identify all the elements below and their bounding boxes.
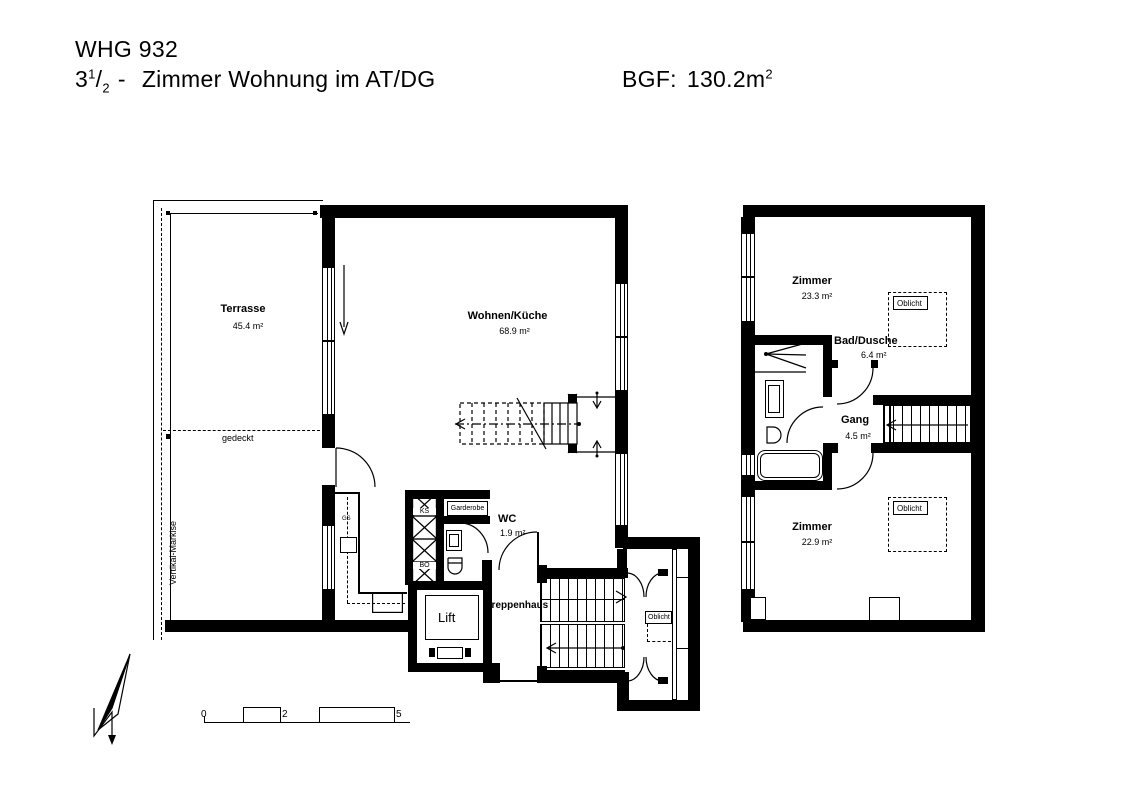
bathtub-inner [760, 453, 820, 478]
wohnen-area: 68.9 m² [462, 326, 567, 336]
scale-tick [204, 716, 205, 723]
terrasse-area: 45.4 m² [198, 321, 298, 331]
annex-glazing [672, 549, 677, 700]
gang-label: Gang [830, 414, 880, 426]
wc-door-swing [460, 523, 490, 555]
wohnen-label: Wohnen/Küche [455, 310, 560, 322]
wc-label: WC [498, 513, 516, 525]
window-transom [322, 340, 335, 342]
zimmer-top-area: 23.3 m² [767, 291, 867, 301]
oblicht-top-label: Oblicht [897, 299, 922, 308]
internal-stair [455, 390, 620, 460]
oblicht-bottom-label: Oblicht [897, 504, 922, 513]
window [615, 453, 628, 526]
wall [405, 490, 412, 585]
chimney-block [869, 597, 900, 621]
terrace-slab-top [168, 213, 318, 214]
zimmer-top-door-swing [835, 366, 875, 406]
room-count: 3 [75, 66, 88, 92]
wall [482, 560, 492, 583]
bgf-sup: 2 [765, 66, 773, 81]
wall [743, 481, 832, 490]
door-frame-block [658, 677, 668, 684]
terrace-outline-left [153, 200, 154, 640]
bath-toilet [764, 425, 786, 445]
wall [540, 670, 625, 683]
gedeckt-line [163, 430, 320, 431]
window [741, 496, 755, 590]
lift-door-block [465, 648, 471, 657]
scale-segment [204, 722, 243, 723]
wall [437, 490, 444, 585]
subtitle-text: Zimmer Wohnung im AT/DG [142, 66, 436, 92]
plan-title: WHG 932 [75, 36, 178, 63]
zimmer-bottom-label: Zimmer [762, 521, 862, 533]
plan-subtitle: 31/2-Zimmer Wohnung im AT/DG [75, 66, 435, 96]
zimmer-bottom-area: 22.9 m² [767, 537, 867, 547]
oblicht-dash [647, 624, 648, 642]
fridge-label: KS [413, 508, 436, 515]
wall [322, 415, 335, 448]
fraction-numerator: 1 [88, 66, 96, 81]
bad-area: 6.4 m² [861, 350, 887, 360]
wall [823, 443, 832, 483]
wall [540, 568, 628, 578]
subtitle-dash: - [118, 66, 126, 92]
window-transom [741, 276, 755, 278]
terrace-outline-top [153, 200, 323, 201]
wall [743, 620, 985, 632]
gedeckt-label: gedeckt [222, 433, 254, 443]
entry-door-swing [499, 532, 539, 572]
gang-area: 4.5 m² [833, 431, 883, 441]
bad-door-swing [785, 405, 825, 445]
scale-tick-5: 5 [396, 709, 402, 720]
stair-direction-arrow [884, 417, 972, 433]
window-transom [615, 336, 628, 338]
wall [878, 443, 971, 453]
wc-sink-basin [449, 534, 459, 547]
dishwasher-label: GS [342, 516, 351, 522]
scale-segment-box [319, 707, 395, 723]
dishwasher [340, 537, 357, 553]
toilet [446, 556, 465, 577]
shower [755, 338, 810, 374]
oblicht-dash [647, 641, 671, 642]
window [322, 525, 335, 590]
bgf-label: BGF: [622, 66, 677, 92]
door-frame-block [658, 569, 668, 576]
landing-threshold [500, 680, 537, 682]
zimmer-bottom-door-swing [835, 451, 875, 491]
terrace-corner-mark [166, 211, 170, 215]
glazing-connector [677, 577, 688, 578]
fraction-denominator: 2 [102, 81, 110, 96]
vertikal-markise-label: Vertikal-Markise [168, 500, 178, 585]
wall [615, 205, 628, 283]
stair-direction-arrow [543, 640, 628, 656]
bgf-number: 130.2m [687, 66, 766, 92]
scale-segment [281, 722, 319, 723]
tall-kitchen-unit [412, 493, 437, 585]
wall [322, 485, 335, 525]
lift-label: Lift [438, 610, 455, 625]
kitchen-counter-end [335, 492, 358, 494]
oven-label: BO [413, 562, 436, 569]
bgf-value: BGF:130.2m2 [622, 66, 773, 93]
bath-sink-basin [768, 385, 780, 413]
treppenhaus-label: Treppenhaus [486, 600, 548, 611]
lift-door-block [429, 648, 435, 657]
north-arrow-icon [88, 650, 150, 750]
gedeckt-corner-mark [166, 434, 171, 439]
floor-plan-sheet: WHG 932 31/2-Zimmer Wohnung im AT/DG BGF… [0, 0, 1123, 794]
scale-tick-2: 2 [282, 709, 288, 720]
cooktop [372, 592, 403, 613]
wall [823, 335, 832, 397]
scale-segment-box [243, 707, 281, 723]
terrace-door-swing [335, 447, 377, 489]
markise-dash-line [161, 208, 162, 640]
wall [623, 700, 700, 711]
wall [743, 205, 985, 217]
zimmer-top-label: Zimmer [762, 275, 862, 287]
scale-segment [395, 722, 410, 723]
wall [483, 663, 500, 683]
kitchen-counter-edge [358, 492, 360, 592]
garderobe-label: Garderobe [447, 505, 488, 512]
window-cap [741, 449, 755, 455]
terrasse-label: Terrasse [193, 303, 293, 315]
wall [873, 395, 971, 405]
wall [165, 620, 410, 632]
window-transom [741, 541, 755, 543]
oblicht-label: Oblicht [648, 614, 670, 621]
wall [688, 537, 700, 711]
wall [322, 205, 335, 267]
door-direction-arrow [340, 265, 350, 340]
lift-door-mechanism [437, 647, 463, 659]
wall-niche [750, 597, 766, 620]
wall [971, 205, 985, 632]
wall [320, 205, 628, 218]
glazing-connector [677, 648, 688, 649]
terrace-corner-mark [313, 211, 317, 215]
wall [741, 217, 755, 233]
wall [537, 666, 547, 683]
wall [412, 490, 490, 499]
